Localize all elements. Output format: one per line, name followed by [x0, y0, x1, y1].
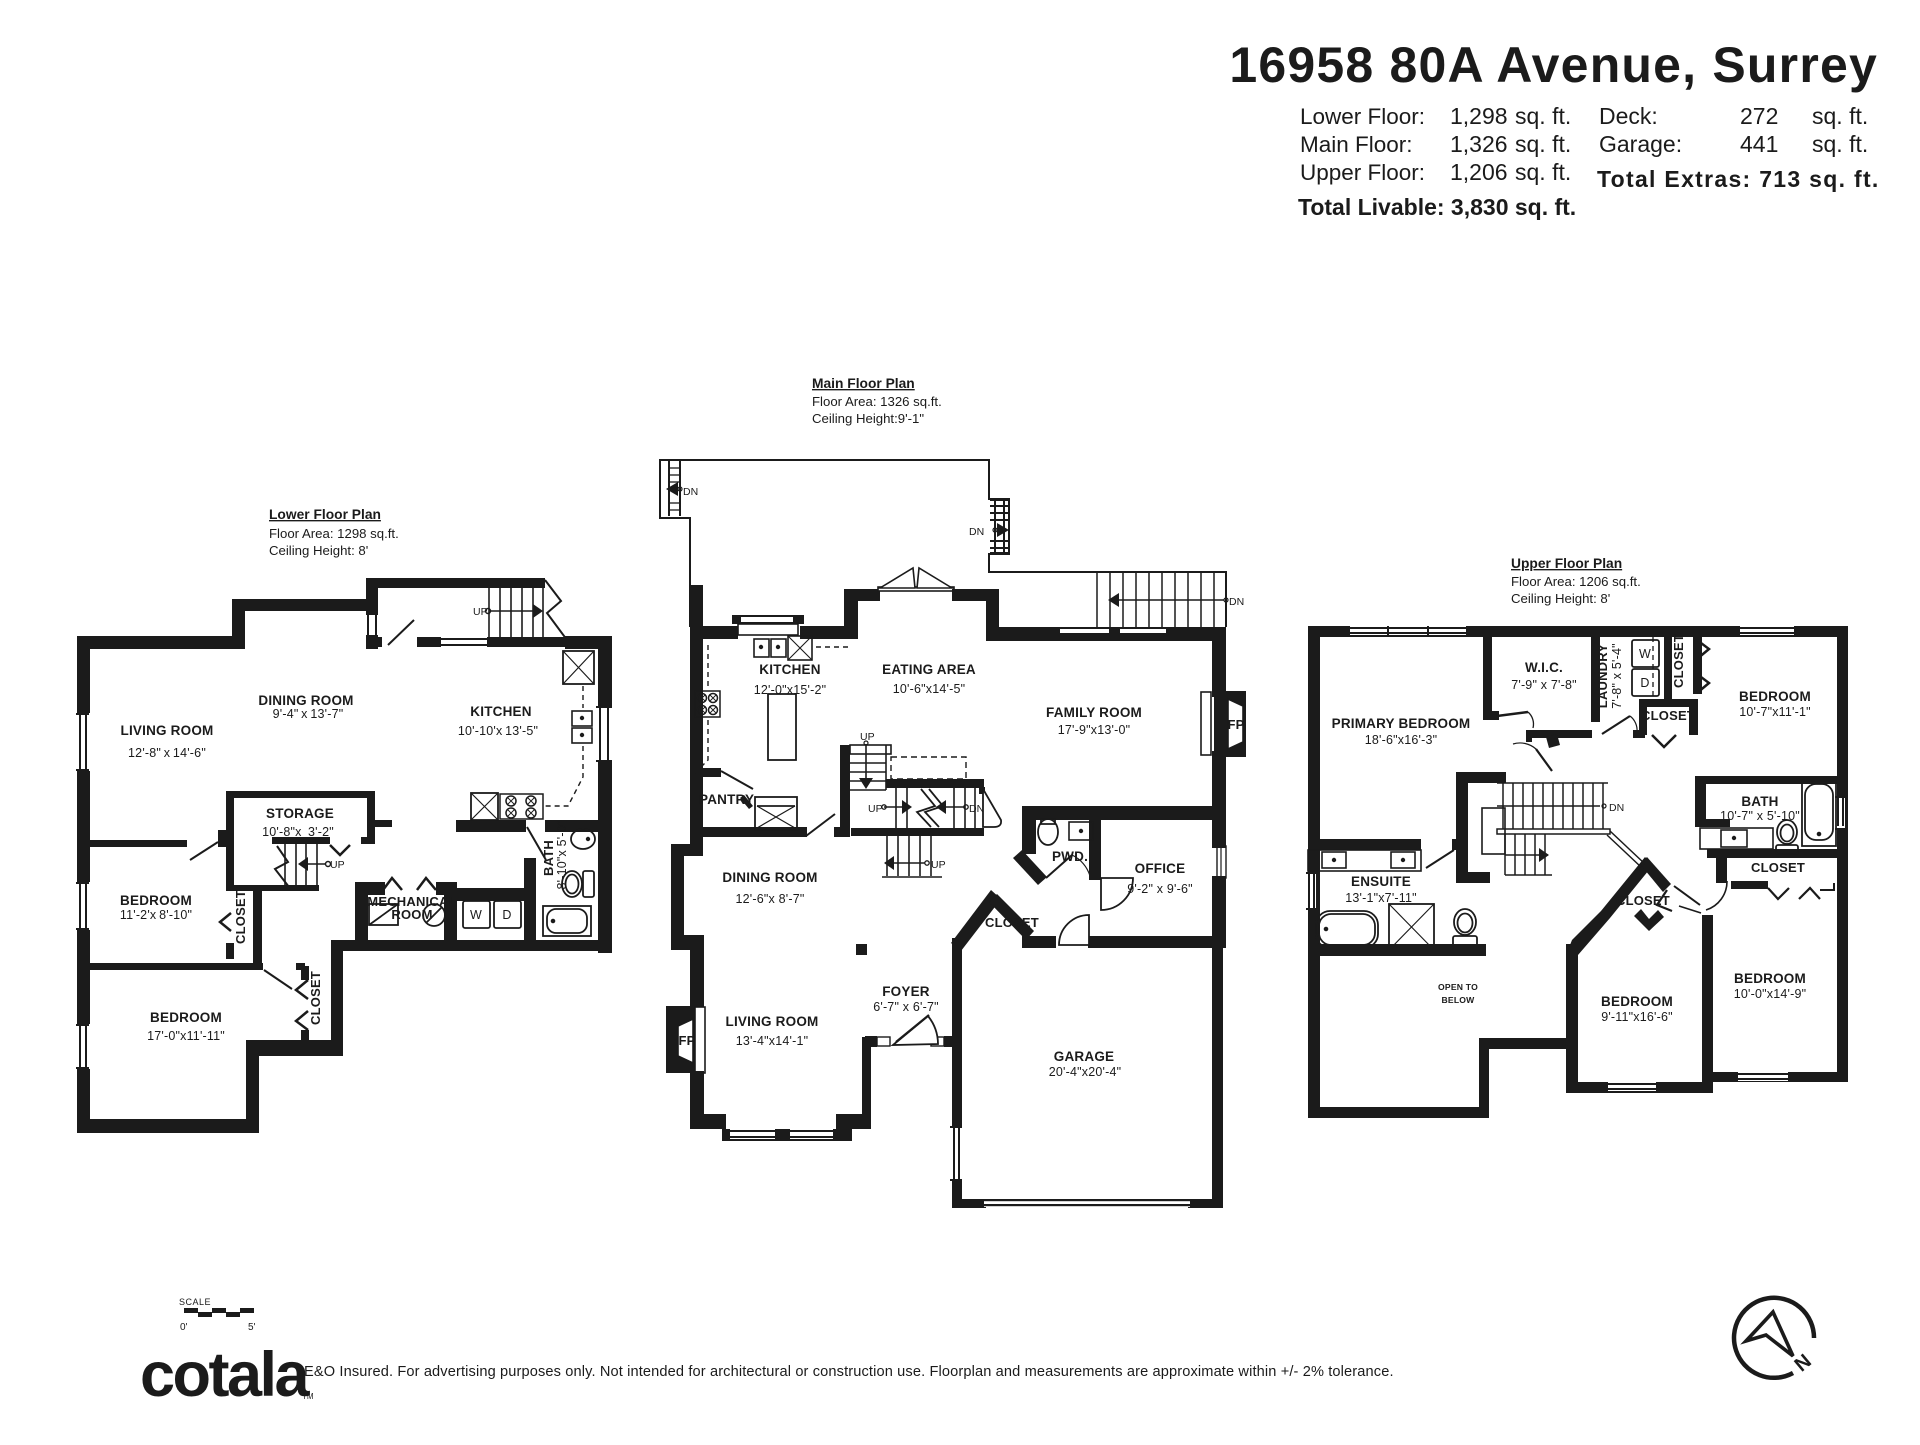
svg-text:KITCHEN: KITCHEN	[470, 704, 531, 719]
svg-text:5': 5'	[248, 1322, 256, 1333]
svg-text:PRIMARY BEDROOM: PRIMARY BEDROOM	[1332, 716, 1471, 731]
svg-text:Floor Area: 1298 sq.ft.: Floor Area: 1298 sq.ft.	[269, 526, 399, 541]
svg-text:Garage:: Garage:	[1599, 131, 1682, 157]
svg-text:7'-9" x 7'-8": 7'-9" x 7'-8"	[1511, 678, 1577, 692]
svg-text:10'-0"x14'-9": 10'-0"x14'-9"	[1734, 987, 1807, 1001]
svg-text:BEDROOM: BEDROOM	[120, 893, 192, 908]
svg-text:Total Extras: 713 sq. ft.: Total Extras: 713 sq. ft.	[1597, 166, 1880, 192]
svg-text:Floor Area: 1206 sq.ft.: Floor Area: 1206 sq.ft.	[1511, 574, 1641, 589]
svg-text:STORAGE: STORAGE	[266, 806, 334, 821]
svg-text:OFFICE: OFFICE	[1135, 861, 1186, 876]
svg-text:EATING AREA: EATING AREA	[882, 662, 976, 677]
svg-text:9'-11"x16'-6": 9'-11"x16'-6"	[1601, 1010, 1673, 1024]
svg-text:Lower Floor Plan: Lower Floor Plan	[269, 507, 381, 522]
svg-text:LIVING ROOM: LIVING ROOM	[726, 1014, 819, 1029]
svg-text:CLOSET: CLOSET	[1641, 708, 1695, 723]
svg-text:BEDROOM: BEDROOM	[1734, 971, 1806, 986]
svg-text:1,206: 1,206	[1450, 159, 1508, 185]
svg-text:W: W	[470, 908, 482, 922]
svg-text:D: D	[1640, 676, 1649, 690]
svg-text:UP: UP	[931, 859, 946, 871]
svg-text:ENSUITE: ENSUITE	[1351, 874, 1411, 889]
svg-text:BATH: BATH	[541, 840, 556, 876]
svg-text:SCALE: SCALE	[179, 1297, 211, 1307]
svg-text:DINING ROOM: DINING ROOM	[258, 693, 353, 708]
svg-text:8'-10"x 5'-0": 8'-10"x 5'-0"	[555, 820, 569, 889]
svg-text:Upper Floor:: Upper Floor:	[1300, 160, 1425, 185]
svg-text:DN: DN	[969, 526, 984, 538]
svg-text:Floor Area: 1326 sq.ft.: Floor Area: 1326 sq.ft.	[812, 394, 942, 409]
svg-text:BEDROOM: BEDROOM	[1739, 689, 1811, 704]
svg-text:BEDROOM: BEDROOM	[1601, 994, 1673, 1009]
svg-text:cotala: cotala	[140, 1340, 311, 1410]
svg-text:W: W	[1639, 647, 1651, 661]
svg-text:sq. ft.: sq. ft.	[1515, 103, 1571, 129]
svg-text:DN: DN	[1229, 596, 1244, 608]
svg-text:20'-4"x20'-4": 20'-4"x20'-4"	[1049, 1065, 1122, 1079]
svg-text:GARAGE: GARAGE	[1054, 1049, 1114, 1064]
svg-text:0': 0'	[180, 1322, 188, 1333]
svg-text:10'-7" x 5'-10": 10'-7" x 5'-10"	[1720, 809, 1800, 823]
svg-text:TM: TM	[302, 1392, 314, 1401]
svg-text:11'-2'x 8'-10": 11'-2'x 8'-10"	[120, 908, 192, 922]
svg-text:E&O Insured. For advertising p: E&O Insured. For advertising purposes on…	[304, 1364, 1394, 1380]
svg-text:9'-4" x 13'-7": 9'-4" x 13'-7"	[273, 707, 344, 721]
svg-text:OPEN TO: OPEN TO	[1438, 982, 1478, 992]
svg-text:FOYER: FOYER	[882, 984, 930, 999]
svg-text:10'-6"x14'-5": 10'-6"x14'-5"	[893, 682, 966, 696]
svg-text:FP: FP	[678, 1033, 695, 1048]
svg-text:W.I.C.: W.I.C.	[1525, 660, 1563, 675]
svg-text:Upper Floor Plan: Upper Floor Plan	[1511, 556, 1622, 571]
svg-text:sq. ft.: sq. ft.	[1812, 103, 1868, 129]
svg-text:10'-10'x 13'-5": 10'-10'x 13'-5"	[458, 724, 538, 738]
svg-text:KITCHEN: KITCHEN	[759, 662, 820, 677]
svg-text:sq. ft.: sq. ft.	[1515, 159, 1571, 185]
svg-text:Ceiling Height: 8': Ceiling Height: 8'	[1511, 591, 1610, 606]
svg-text:12'-6"x 8'-7": 12'-6"x 8'-7"	[735, 892, 804, 906]
svg-text:ROOM: ROOM	[391, 907, 432, 922]
svg-text:FP: FP	[1227, 717, 1244, 732]
svg-text:sq. ft.: sq. ft.	[1515, 131, 1571, 157]
svg-text:UP: UP	[868, 803, 883, 815]
svg-text:D: D	[502, 908, 511, 922]
svg-text:13'-1"x7'-11": 13'-1"x7'-11"	[1345, 891, 1417, 905]
svg-text:UP: UP	[330, 859, 345, 871]
svg-text:6'-7" x 6'-7": 6'-7" x 6'-7"	[873, 1000, 939, 1014]
svg-text:Deck:: Deck:	[1599, 103, 1658, 129]
svg-text:12'-0"x15'-2": 12'-0"x15'-2"	[754, 683, 827, 697]
svg-text:CLOSET: CLOSET	[1671, 634, 1686, 688]
svg-text:PWD.: PWD.	[1052, 849, 1088, 864]
svg-text:16958 80A Avenue, Surrey: 16958 80A Avenue, Surrey	[1229, 37, 1878, 93]
svg-text:DN: DN	[1609, 802, 1624, 814]
svg-text:18'-6"x16'-3": 18'-6"x16'-3"	[1365, 733, 1438, 747]
svg-text:1,326: 1,326	[1450, 131, 1508, 157]
svg-text:Main Floor Plan: Main Floor Plan	[812, 376, 915, 391]
svg-text:12'-8" x 14'-6": 12'-8" x 14'-6"	[128, 746, 206, 760]
svg-text:DINING ROOM: DINING ROOM	[722, 870, 817, 885]
svg-text:CLOSET: CLOSET	[985, 915, 1039, 930]
svg-text:DN: DN	[683, 486, 698, 498]
svg-text:CLOSET: CLOSET	[308, 971, 323, 1025]
svg-text:CLOSET: CLOSET	[1616, 893, 1670, 908]
svg-text:Main Floor:: Main Floor:	[1300, 132, 1413, 157]
svg-text:DN: DN	[969, 803, 984, 815]
svg-text:441: 441	[1740, 131, 1778, 157]
svg-text:1,298: 1,298	[1450, 103, 1508, 129]
svg-text:Lower Floor:: Lower Floor:	[1300, 104, 1425, 129]
svg-text:10'-8"x 3'-2": 10'-8"x 3'-2"	[262, 825, 334, 839]
svg-text:Ceiling Height: 8': Ceiling Height: 8'	[269, 543, 368, 558]
svg-text:17'-9"x13'-0": 17'-9"x13'-0"	[1058, 723, 1131, 737]
svg-text:CLOSET: CLOSET	[233, 890, 248, 944]
svg-text:FAMILY ROOM: FAMILY ROOM	[1046, 705, 1142, 720]
svg-text:BEDROOM: BEDROOM	[150, 1010, 222, 1025]
svg-text:LIVING ROOM: LIVING ROOM	[121, 723, 214, 738]
svg-text:UP: UP	[473, 606, 488, 618]
svg-text:7'-8" x 5'-4": 7'-8" x 5'-4"	[1610, 643, 1624, 709]
svg-text:Total Livable: 3,830 sq. ft.: Total Livable: 3,830 sq. ft.	[1298, 194, 1576, 220]
svg-text:17'-0"x11'-11": 17'-0"x11'-11"	[147, 1029, 225, 1043]
svg-text:sq. ft.: sq. ft.	[1812, 131, 1868, 157]
svg-text:LAUNDRY: LAUNDRY	[1595, 644, 1610, 709]
svg-text:272: 272	[1740, 103, 1778, 129]
svg-text:BATH: BATH	[1741, 794, 1778, 809]
svg-text:Ceiling Height:9'-1": Ceiling Height:9'-1"	[812, 411, 924, 426]
svg-text:PANTRY: PANTRY	[699, 792, 754, 807]
svg-text:10'-7"x11'-1": 10'-7"x11'-1"	[1739, 705, 1811, 719]
svg-text:BELOW: BELOW	[1442, 995, 1476, 1005]
svg-text:CLOSET: CLOSET	[1751, 860, 1805, 875]
svg-text:13'-4"x14'-1": 13'-4"x14'-1"	[736, 1034, 809, 1048]
svg-text:9'-2" x 9'-6": 9'-2" x 9'-6"	[1127, 882, 1193, 896]
